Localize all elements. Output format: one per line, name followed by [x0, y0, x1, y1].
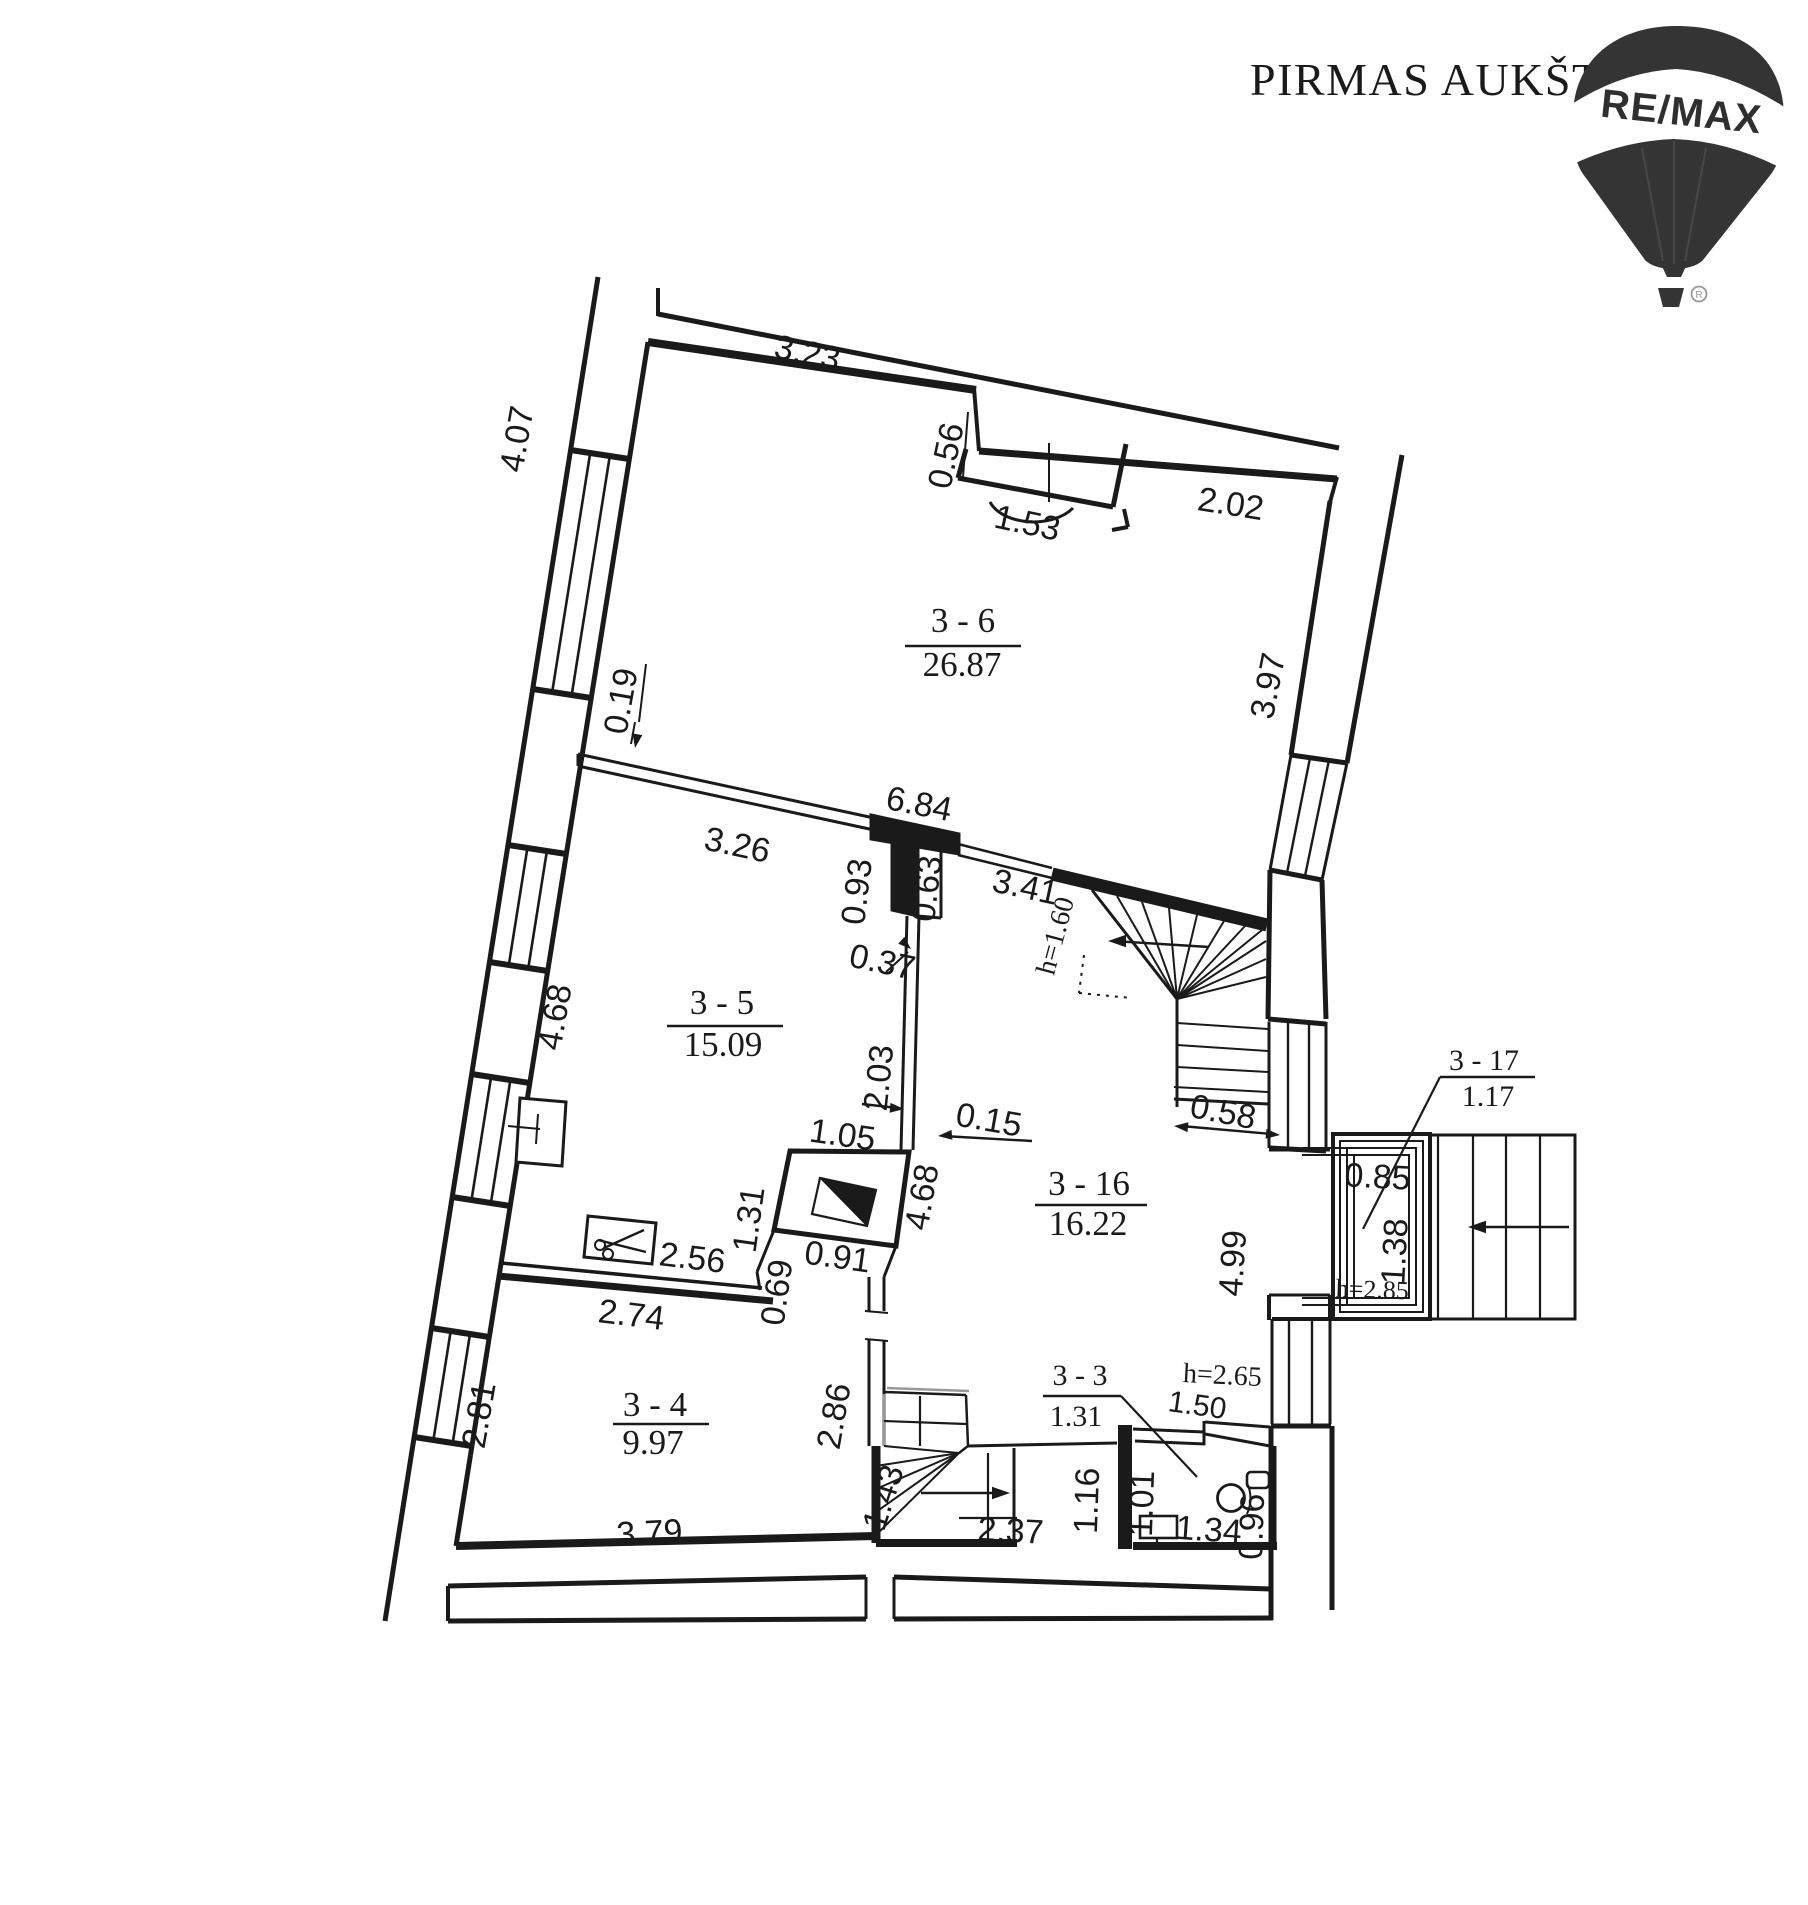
svg-text:1.31: 1.31 [1050, 1400, 1103, 1433]
svg-text:26.87: 26.87 [923, 645, 1002, 684]
svg-text:2.03: 2.03 [857, 1043, 902, 1113]
svg-text:0.93: 0.93 [834, 856, 880, 926]
svg-text:2.74: 2.74 [596, 1292, 666, 1338]
svg-text:1.16: 1.16 [1067, 1467, 1107, 1534]
svg-text:2.37: 2.37 [977, 1510, 1045, 1551]
svg-text:3 - 16: 3 - 16 [1048, 1164, 1130, 1203]
svg-text:h=2.85: h=2.85 [1335, 1274, 1409, 1306]
svg-text:0.63: 0.63 [904, 853, 950, 923]
svg-text:2.56: 2.56 [657, 1235, 727, 1281]
svg-text:1.01: 1.01 [1122, 1470, 1162, 1537]
svg-text:3 - 4: 3 - 4 [623, 1385, 687, 1424]
svg-text:3 - 6: 3 - 6 [931, 601, 995, 640]
svg-text:1.34: 1.34 [1174, 1509, 1243, 1552]
svg-text:3 - 3: 3 - 3 [1053, 1359, 1108, 1392]
svg-text:3.79: 3.79 [615, 1512, 683, 1553]
svg-text:1.17: 1.17 [1462, 1080, 1515, 1113]
svg-text:15.09: 15.09 [684, 1025, 763, 1064]
svg-text:3 - 5: 3 - 5 [690, 983, 754, 1022]
svg-text:3 - 17: 3 - 17 [1449, 1044, 1519, 1077]
svg-text:16.22: 16.22 [1049, 1204, 1128, 1243]
svg-text:R: R [1695, 290, 1702, 301]
svg-text:9.97: 9.97 [622, 1423, 683, 1462]
svg-text:h=2.65: h=2.65 [1182, 1358, 1262, 1393]
svg-text:0.85: 0.85 [1344, 1156, 1412, 1197]
svg-text:4.99: 4.99 [1212, 1229, 1255, 1298]
